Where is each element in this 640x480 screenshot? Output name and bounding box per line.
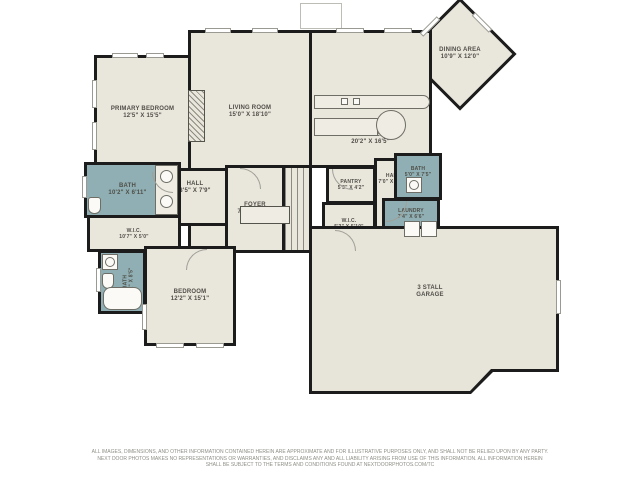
window: [205, 28, 231, 33]
room-name: DINING AREA: [439, 47, 481, 54]
window: [146, 53, 164, 58]
room-dining-area: DINING AREA 10'9" X 12'0": [413, 44, 507, 64]
sink-fixture: [105, 257, 115, 267]
floor-plan-page: { "colors":{ "wall":"#1c1c1c", "floor":"…: [0, 0, 640, 480]
room-label: PRIMARY BEDROOM 12'5" X 15'5": [111, 106, 174, 120]
window: [96, 268, 101, 292]
sink-fixture: [409, 180, 419, 190]
room-label: LIVING ROOM 15'0" X 18'10": [229, 105, 272, 119]
room-name: BEDROOM: [171, 289, 210, 296]
washer-unit: [404, 221, 420, 237]
room-label: BATH 5'0" X 7'5": [405, 166, 432, 178]
room-name: BATH: [108, 183, 146, 190]
room-label: W.I.C. 10'7" X 5'0": [119, 228, 149, 240]
room-dims: 12'2" X 15'1": [171, 296, 210, 303]
window: [156, 343, 184, 348]
kitchen-island: [314, 118, 378, 136]
room-name: PRIMARY BEDROOM: [111, 106, 174, 113]
floor-plan: DINING AREA 10'9" X 12'0" LIVING ROOM 15…: [0, 0, 640, 480]
window: [556, 280, 561, 314]
disclaimer-text: ALL IMAGES, DIMENSIONS, AND OTHER INFORM…: [0, 449, 640, 469]
room-dims: 8'5" X 7'9": [179, 188, 210, 195]
window: [336, 28, 364, 33]
toilet-fixture: [88, 197, 101, 214]
room-dims: 10'7" X 5'0": [119, 234, 149, 240]
disclaimer-line: SHALL BE SUBJECT TO THE TERMS AND CONDIT…: [0, 462, 640, 469]
sink-fixture: [160, 195, 173, 208]
room-label: BEDROOM 12'2" X 15'1": [171, 289, 210, 303]
window: [384, 28, 412, 33]
room-label: 3 STALL GARAGE: [399, 282, 461, 302]
room-dims: 15'0" X 18'10": [229, 112, 272, 119]
room-garage: 3 STALL GARAGE: [309, 226, 559, 394]
window: [196, 343, 224, 348]
room-dims: 10'9" X 12'0": [439, 54, 481, 61]
room-primary-bedroom: PRIMARY BEDROOM 12'5" X 15'5": [94, 55, 191, 171]
cooktop-burner: [341, 98, 348, 105]
dryer-unit: [421, 221, 437, 237]
kitchen-counter: [314, 95, 430, 109]
fireplace: [188, 90, 205, 142]
cooktop-burner: [353, 98, 360, 105]
room-dims: GARAGE: [416, 292, 444, 299]
room-label: DINING AREA 10'9" X 12'0": [439, 47, 481, 61]
room-name: LIVING ROOM: [229, 105, 272, 112]
window: [92, 80, 97, 108]
room-dims: 12'5" X 15'5": [111, 113, 174, 120]
disclaimer-line: ALL IMAGES, DIMENSIONS, AND OTHER INFORM…: [0, 449, 640, 456]
window: [142, 304, 147, 330]
room-name: 3 STALL: [416, 285, 444, 292]
room-label: BATH 10'2" X 6'11": [108, 183, 146, 197]
garage-floor: [312, 229, 556, 391]
room-name: HALL: [179, 181, 210, 188]
kitchen-round-table: [376, 110, 406, 140]
entry-porch-outline: [300, 3, 342, 29]
stair-landing: [240, 206, 290, 224]
bathtub-fixture: [103, 287, 142, 310]
window: [92, 122, 97, 150]
window: [112, 53, 138, 58]
window: [252, 28, 278, 33]
window: [82, 176, 87, 198]
room-label: HALL 8'5" X 7'9": [179, 181, 210, 195]
room-dims: 10'2" X 6'11": [108, 190, 146, 197]
room-dims: 20'2" X 16'5": [351, 139, 390, 146]
